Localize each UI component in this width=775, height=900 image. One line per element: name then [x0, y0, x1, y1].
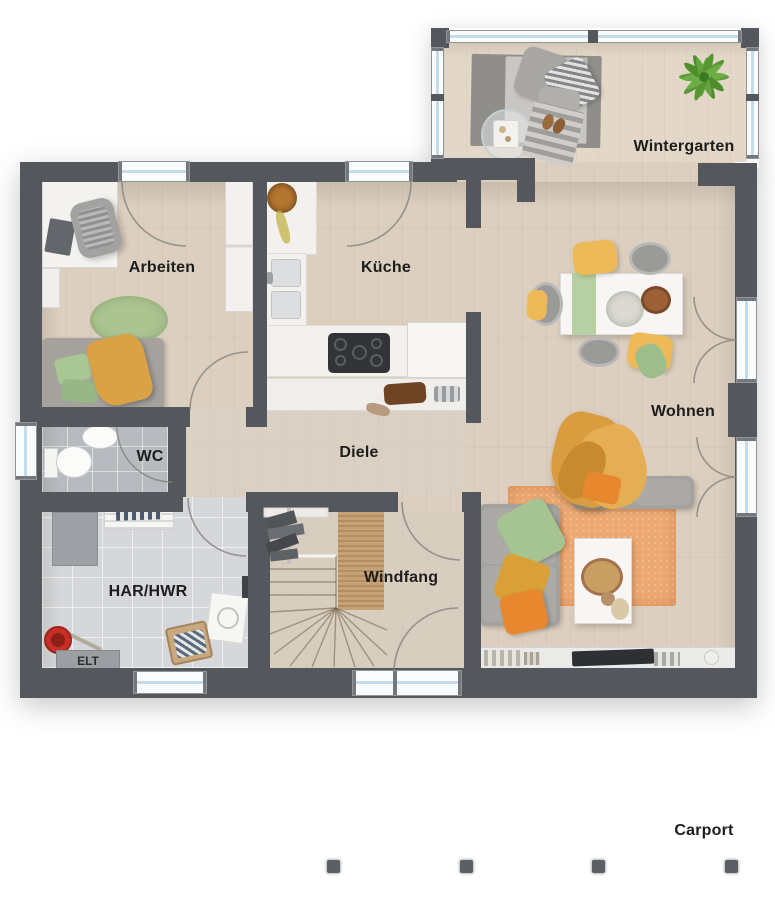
handbag [383, 382, 426, 406]
room-label-windfang: Windfang [364, 569, 438, 587]
wall-arbeiten-kueche [253, 162, 267, 412]
shadow-top [42, 182, 735, 208]
wintergarten-post [741, 28, 759, 48]
desk-shelf [42, 268, 60, 308]
stair-runner [338, 510, 384, 610]
room-label-kueche: Küche [361, 259, 411, 277]
wc-sink [82, 425, 118, 449]
wintergarten-mullion [431, 94, 444, 101]
dining-chair-gray [578, 337, 620, 367]
french-door-1 [736, 297, 757, 383]
laundry-clothes [173, 629, 207, 659]
carport-post [460, 860, 473, 873]
wintergarten-glass-left [431, 47, 444, 159]
books [524, 652, 540, 665]
burner [335, 355, 346, 366]
washing-machine [205, 592, 249, 644]
bucket-inner [51, 633, 65, 647]
carport-post [327, 860, 340, 873]
entrance-door [352, 670, 462, 696]
window-arbeiten [118, 161, 190, 182]
carport-post [725, 860, 738, 873]
wintergarten-mullion [746, 94, 759, 101]
wall-mid-a [20, 492, 183, 512]
wall-windfang-wohnen [464, 492, 481, 668]
shoes [434, 386, 460, 402]
round-tray [581, 558, 623, 596]
burner [371, 338, 382, 349]
wall-right-pier [728, 383, 757, 437]
wall-kueche-wohnen [466, 312, 481, 423]
room-label-arbeiten: Arbeiten [129, 259, 196, 277]
chair-cushion [77, 205, 116, 251]
dining-chair-gray [629, 242, 671, 275]
wall-under-wintergarten [457, 158, 535, 180]
floor-diele [186, 408, 466, 494]
wall-t-stub [466, 178, 481, 228]
carport-post [592, 860, 605, 873]
wall-wc-east [168, 420, 186, 497]
window-har [133, 671, 207, 694]
toilet [56, 446, 92, 478]
window-wc [15, 422, 37, 480]
burner [334, 338, 347, 351]
wintergarten-mullion [588, 30, 598, 43]
flower-bouquet [606, 291, 644, 327]
room-label-wc: WC [136, 448, 163, 466]
room-label-elt: ELT [77, 654, 99, 668]
dining-chair-yellow [571, 239, 618, 276]
copper-bowl [641, 286, 671, 314]
fridge [407, 322, 468, 378]
wall-arbeiten-south-pier [246, 407, 267, 427]
books [484, 650, 522, 666]
books [654, 652, 680, 666]
wintergarten-post [431, 158, 457, 182]
window-kueche [345, 161, 413, 182]
pampas-plant [611, 598, 629, 620]
table-tray [493, 120, 519, 148]
wintergarten-glass-right [746, 47, 759, 159]
room-label-wohnen: Wohnen [651, 403, 715, 421]
room-label-har-hwr: HAR/HWR [109, 583, 188, 601]
carport-label: Carport [674, 822, 733, 840]
chair-cushion-yellow [526, 289, 548, 320]
floor-plan-canvas: ELT [0, 0, 775, 900]
fruit-bowl [267, 183, 297, 213]
wardrobe [225, 180, 253, 312]
burner [352, 345, 367, 360]
wall-har-windfang [248, 497, 270, 668]
table-runner [572, 273, 596, 335]
sink-basin [271, 259, 301, 287]
door-divider [393, 671, 397, 695]
washer-drum [216, 606, 241, 631]
tv [572, 649, 654, 667]
burner [370, 354, 383, 367]
candle [499, 126, 506, 133]
wall-tab [517, 180, 535, 202]
appliance-box [52, 512, 98, 566]
room-label-wintergarten: Wintergarten [634, 138, 735, 156]
candle [505, 136, 511, 142]
sink-basin [271, 291, 301, 319]
french-door-2 [736, 437, 757, 517]
faucet [266, 272, 273, 284]
wall-arbeiten-south [20, 407, 190, 427]
decor-roll [704, 650, 719, 665]
room-label-diele: Diele [339, 444, 378, 462]
